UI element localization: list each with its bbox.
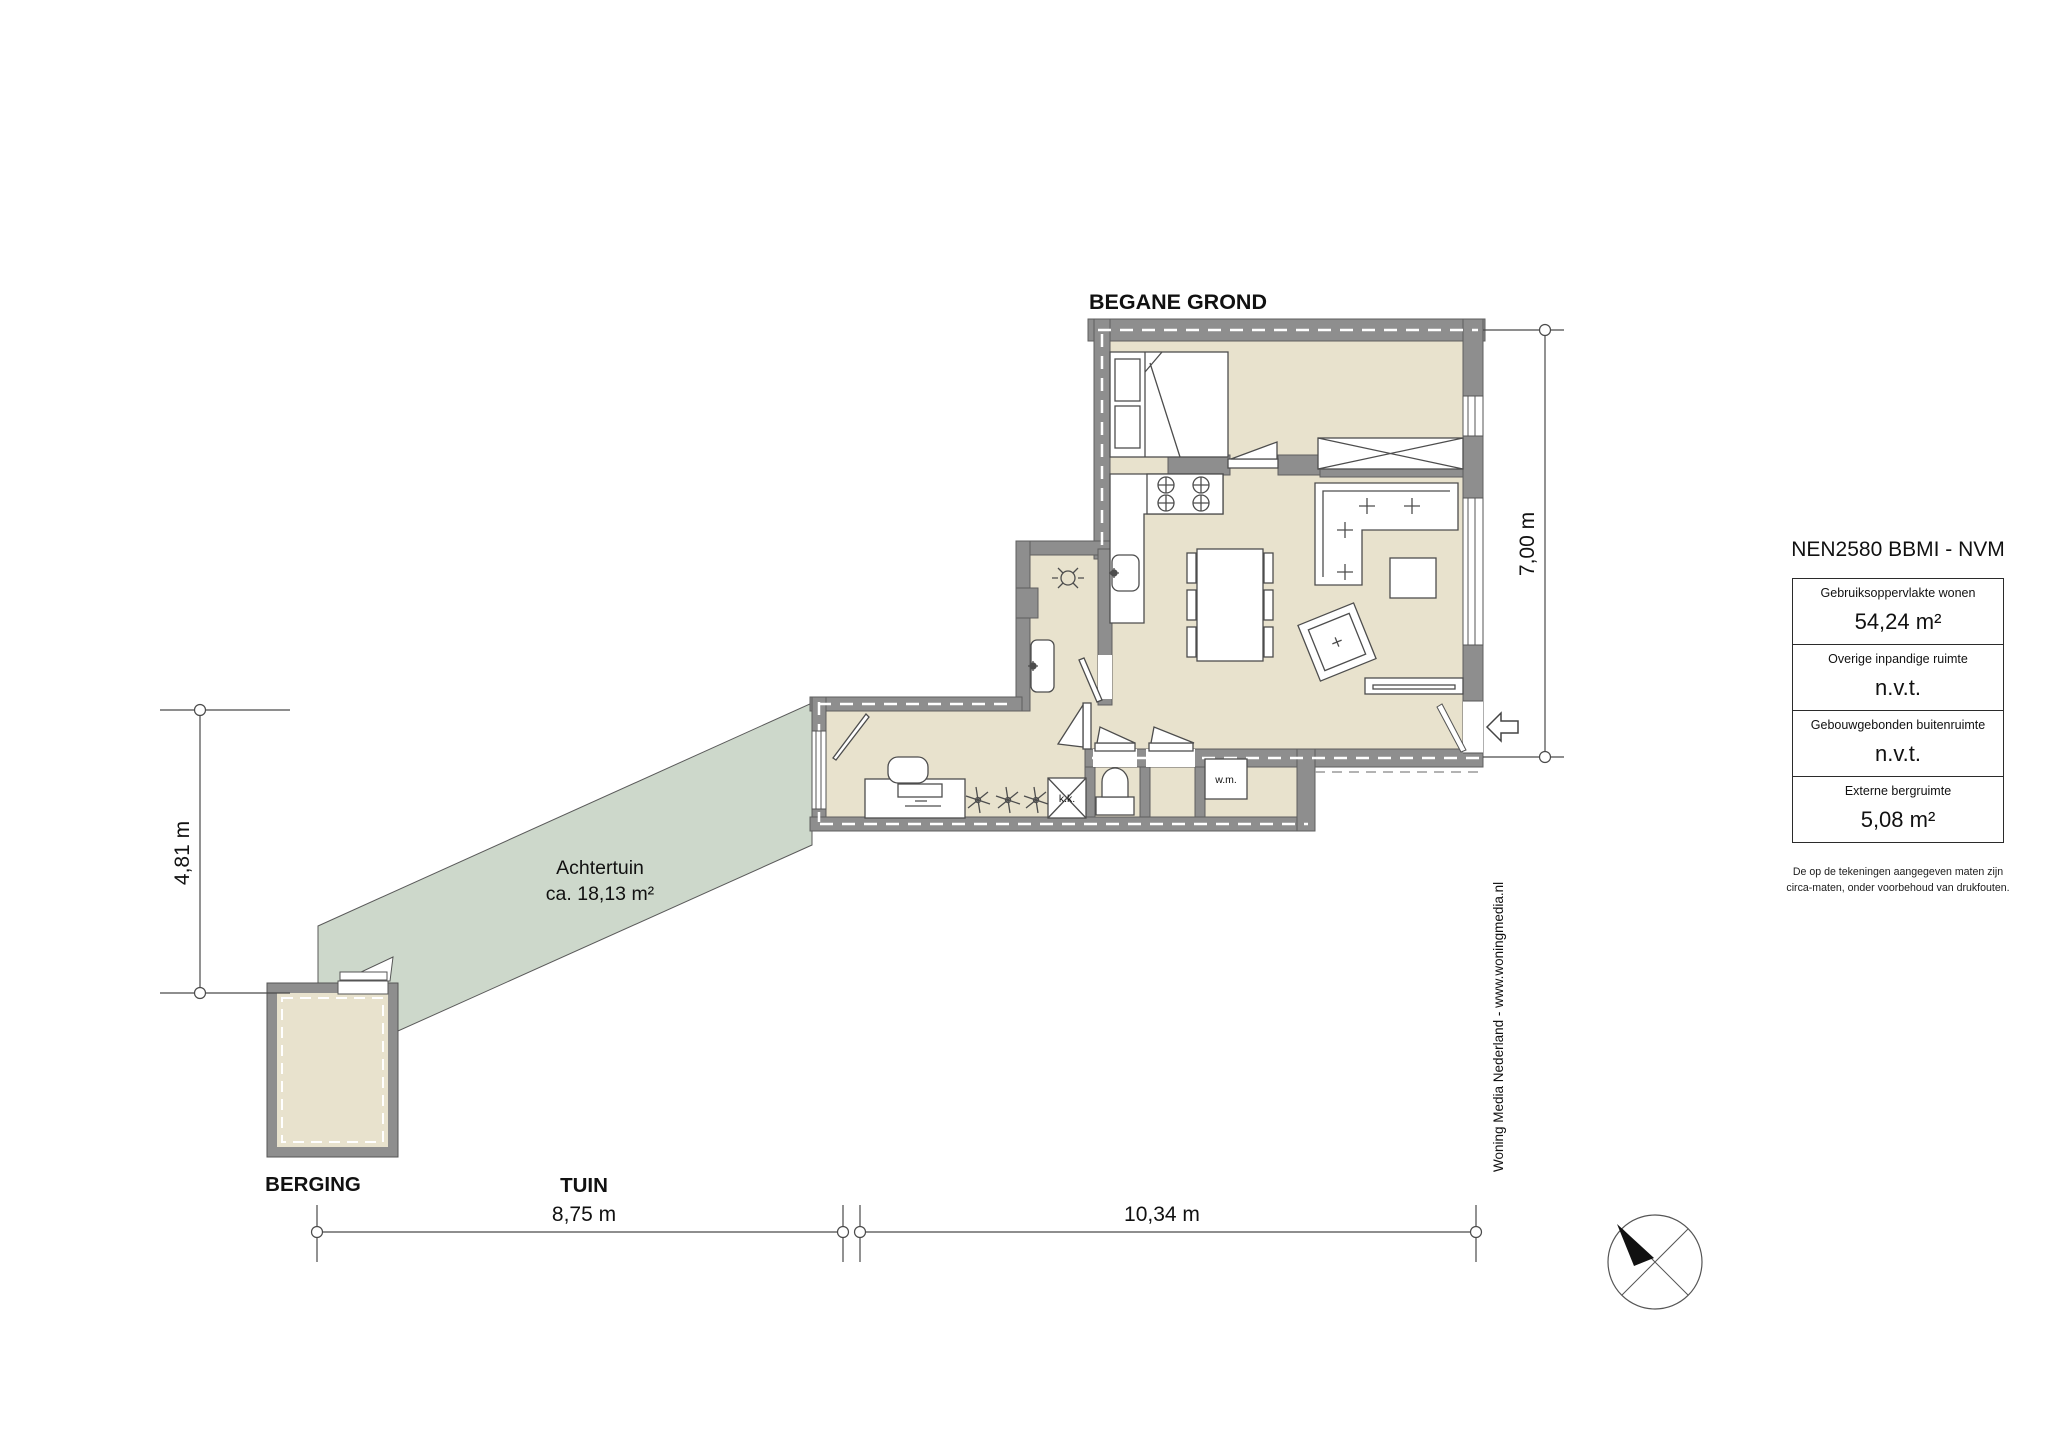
wall-band-east xyxy=(1297,749,1315,831)
gap-entrance xyxy=(1463,701,1483,753)
chair xyxy=(1264,553,1273,583)
legend-row-value: 5,08 m² xyxy=(1796,807,2000,833)
window-right-big xyxy=(1463,498,1483,645)
hatch-label: k.k. xyxy=(1059,793,1075,805)
gap-hall-door-1 xyxy=(1093,749,1137,767)
berging-door-gap xyxy=(338,981,388,994)
dining-table xyxy=(1197,549,1263,661)
legend-row-label: Gebruiksoppervlakte wonen xyxy=(1796,586,2000,600)
floorplan-page: BEGANE GROND Achtertuin ca. 18,13 m² BER… xyxy=(0,0,2048,1434)
hall-door-leaf-1 xyxy=(1095,743,1135,751)
berging-floor xyxy=(277,993,388,1147)
garden-area-label: ca. 18,13 m² xyxy=(546,883,655,905)
legend-row-value: 54,24 m² xyxy=(1796,609,2000,635)
tv-sideboard-inner xyxy=(1373,685,1455,689)
side-table xyxy=(1390,558,1436,598)
compass-rose-icon xyxy=(1608,1215,1702,1309)
credit-text: Woning Media Nederland - www.woningmedia… xyxy=(1491,882,1506,1172)
dim-garden-width: 8,75 m xyxy=(552,1203,616,1226)
legend-table: Gebruiksoppervlakte wonen 54,24 m² Overi… xyxy=(1792,578,2004,843)
chair xyxy=(1264,627,1273,657)
stove xyxy=(1147,474,1223,514)
berging-door-leaf xyxy=(340,972,387,980)
wall-bedroom-divider-a xyxy=(1168,455,1230,475)
window-wing-west xyxy=(812,731,826,809)
dim-house-width: 10,34 m xyxy=(1124,1203,1200,1226)
chair xyxy=(1264,590,1273,620)
chair xyxy=(1187,553,1196,583)
legend-row-gebruiksoppervlakte: Gebruiksoppervlakte wonen 54,24 m² xyxy=(1793,579,2003,644)
disclaimer-line-1: De op de tekeningen aangegeven maten zij… xyxy=(1778,864,2018,880)
washing-machine-label: w.m. xyxy=(1214,774,1237,786)
chair xyxy=(1187,590,1196,620)
chair xyxy=(1187,627,1196,657)
legend-row-overige: Overige inpandige ruimte n.v.t. xyxy=(1793,644,2003,710)
wall-bedroom-divider-b xyxy=(1278,455,1323,475)
plan-title: BEGANE GROND xyxy=(1089,290,1267,314)
gap-bathroom-door xyxy=(1098,655,1112,699)
hall-door-leaf-2 xyxy=(1149,743,1193,751)
disclaimer-line-2: circa-maten, onder voorbehoud van drukfo… xyxy=(1778,880,2018,896)
gap-hall-door-2 xyxy=(1146,749,1195,767)
desk-chair xyxy=(888,757,928,783)
dim-garden-depth: 4,81 m xyxy=(171,821,194,885)
wall-bathroom-pilaster xyxy=(1016,588,1038,618)
toilet-tank xyxy=(1096,797,1134,815)
tuin-label: TUIN xyxy=(560,1174,608,1197)
berging-label: BERGING xyxy=(265,1173,361,1196)
legend-row-value: n.v.t. xyxy=(1796,741,2000,767)
garden-label: Achtertuin xyxy=(556,857,644,879)
legend-row-externe: Externe bergruimte 5,08 m² xyxy=(1793,776,2003,842)
legend-row-gebouwgebonden: Gebouwgebonden buitenruimte n.v.t. xyxy=(1793,710,2003,776)
wall-toilet-right xyxy=(1140,767,1150,817)
wall-wm-partition xyxy=(1195,767,1205,817)
toilet-bowl xyxy=(1102,768,1128,797)
legend-row-label: Externe bergruimte xyxy=(1796,784,2000,798)
bedroom-door-leaf xyxy=(1228,459,1278,468)
bed-pillow-1 xyxy=(1115,359,1140,401)
monitor xyxy=(898,784,942,797)
floorplan-drawing: BEGANE GROND Achtertuin ca. 18,13 m² BER… xyxy=(0,0,2048,1434)
window-right-top xyxy=(1463,396,1483,436)
corridor-door-leaf xyxy=(1083,703,1091,749)
dim-house-depth: 7,00 m xyxy=(1516,512,1539,576)
legend-row-label: Gebouwgebonden buitenruimte xyxy=(1796,718,2000,732)
legend-disclaimer: De op de tekeningen aangegeven maten zij… xyxy=(1778,864,2018,897)
entrance-arrow-icon xyxy=(1487,713,1518,741)
bed-pillow-2 xyxy=(1115,406,1140,448)
legend-row-label: Overige inpandige ruimte xyxy=(1796,652,2000,666)
legend-title: NEN2580 BBMI - NVM xyxy=(1782,538,2014,562)
legend-row-value: n.v.t. xyxy=(1796,675,2000,701)
wall-bathroom-left xyxy=(1016,541,1030,711)
